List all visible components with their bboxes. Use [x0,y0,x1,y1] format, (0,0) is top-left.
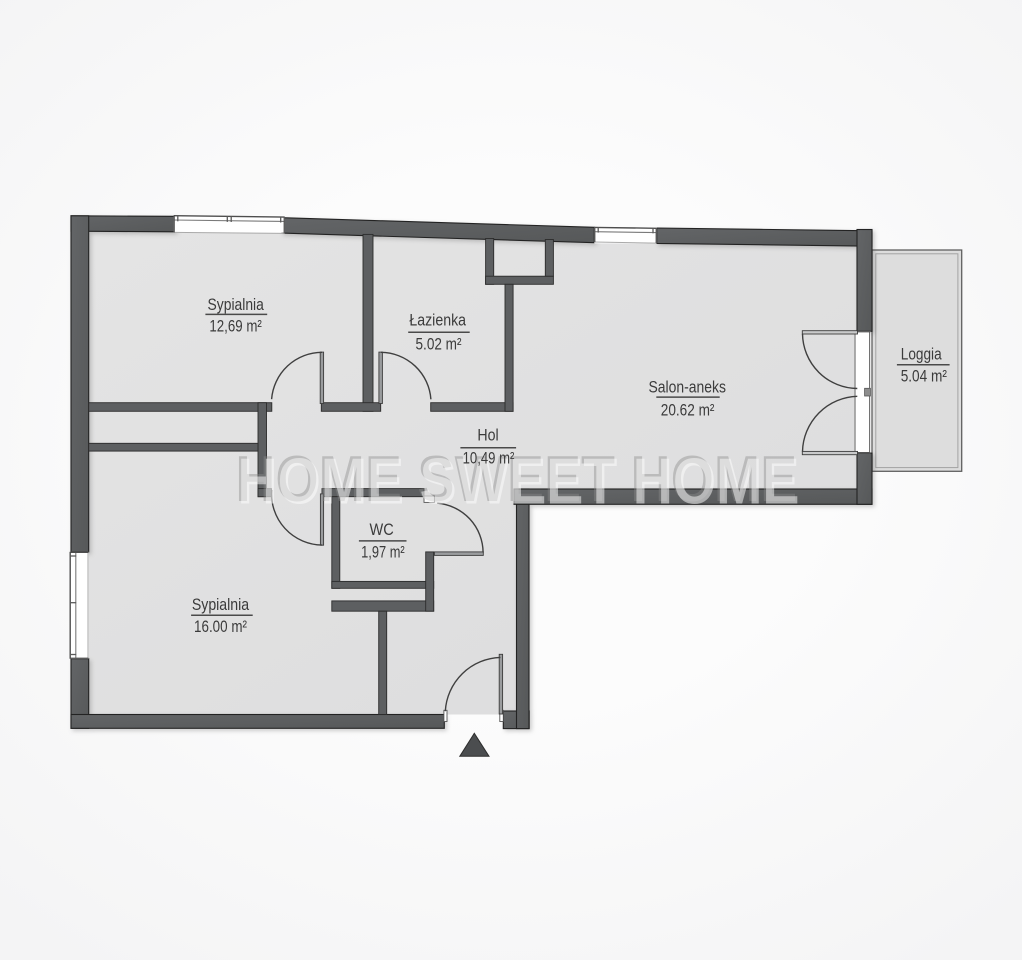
svg-text:5.02 m²: 5.02 m² [416,335,462,354]
svg-text:10,49 m²: 10,49 m² [463,448,515,467]
svg-text:1,97 m²: 1,97 m² [361,543,405,562]
svg-text:16.00 m²: 16.00 m² [194,617,247,636]
svg-text:WC: WC [370,520,394,539]
svg-text:Sypialnia: Sypialnia [208,295,265,314]
svg-text:20.62 m²: 20.62 m² [661,400,715,419]
svg-text:12,69 m²: 12,69 m² [209,317,262,336]
svg-text:Łazienka: Łazienka [409,311,466,330]
svg-text:Salon-aneks: Salon-aneks [648,377,726,396]
svg-text:HOME SWEET HOME: HOME SWEET HOME [238,444,800,517]
svg-text:Loggia: Loggia [901,344,942,363]
svg-text:5.04 m²: 5.04 m² [901,367,947,386]
svg-text:Hol: Hol [477,426,498,445]
svg-text:Sypialnia: Sypialnia [192,595,250,614]
